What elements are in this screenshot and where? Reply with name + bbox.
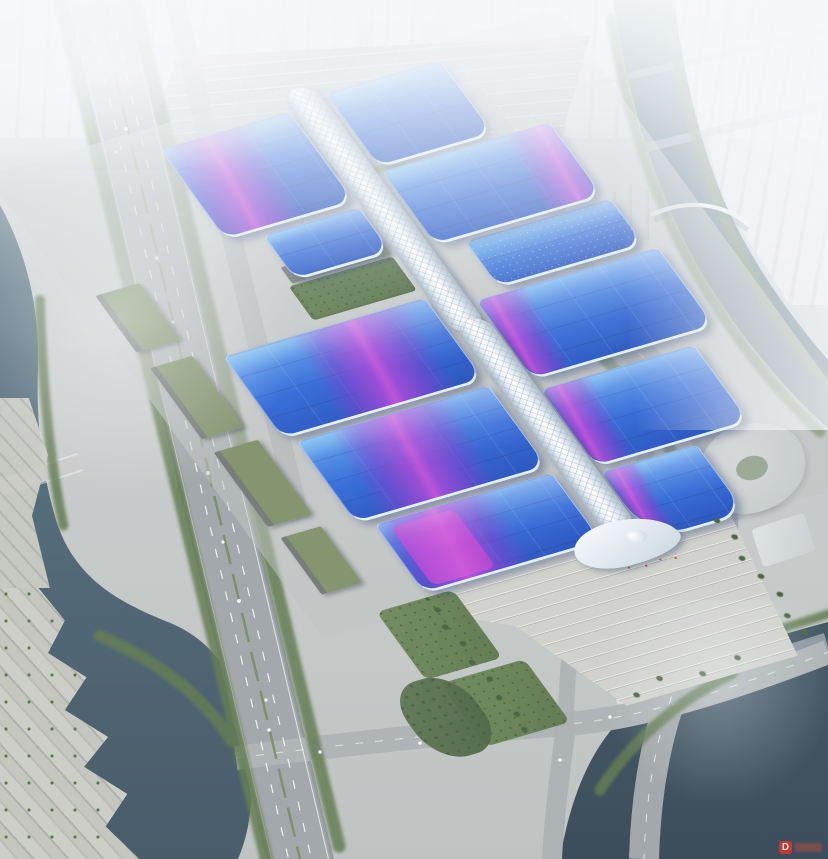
watermark-logo: D	[779, 841, 792, 854]
watermark: D	[779, 841, 822, 854]
plaza-link-road	[566, 600, 576, 726]
watermark-text-illegible	[795, 843, 822, 852]
inner-courtyard-garden	[734, 452, 771, 483]
aerial-rendering-canvas: D	[0, 0, 828, 859]
waterways-and-roads-layer	[0, 0, 828, 859]
